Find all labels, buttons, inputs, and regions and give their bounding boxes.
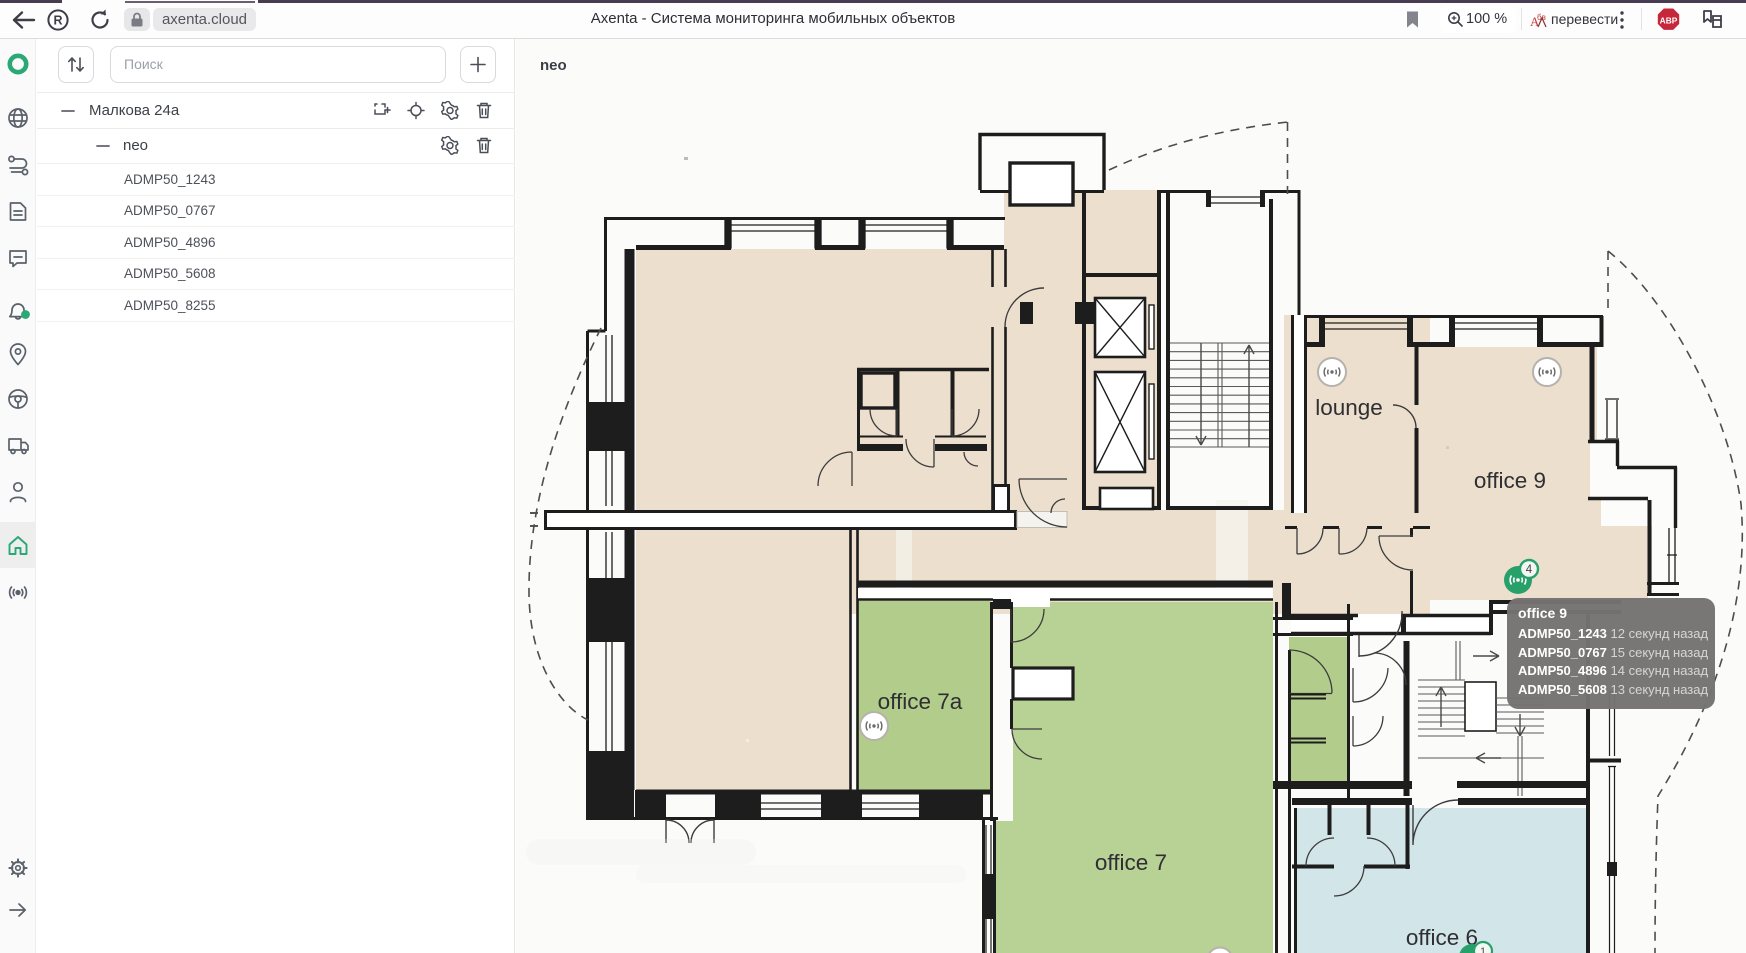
svg-text:R: R <box>53 13 62 27</box>
svg-text:1: 1 <box>1480 946 1486 953</box>
svg-text:office 9: office 9 <box>1474 468 1546 493</box>
svg-text:4: 4 <box>1526 564 1533 576</box>
svg-text:lounge: lounge <box>1315 395 1383 420</box>
svg-text:ABP: ABP <box>1660 15 1678 25</box>
svg-text:office 7: office 7 <box>1095 850 1167 875</box>
svg-text:office 7a: office 7a <box>878 689 963 714</box>
